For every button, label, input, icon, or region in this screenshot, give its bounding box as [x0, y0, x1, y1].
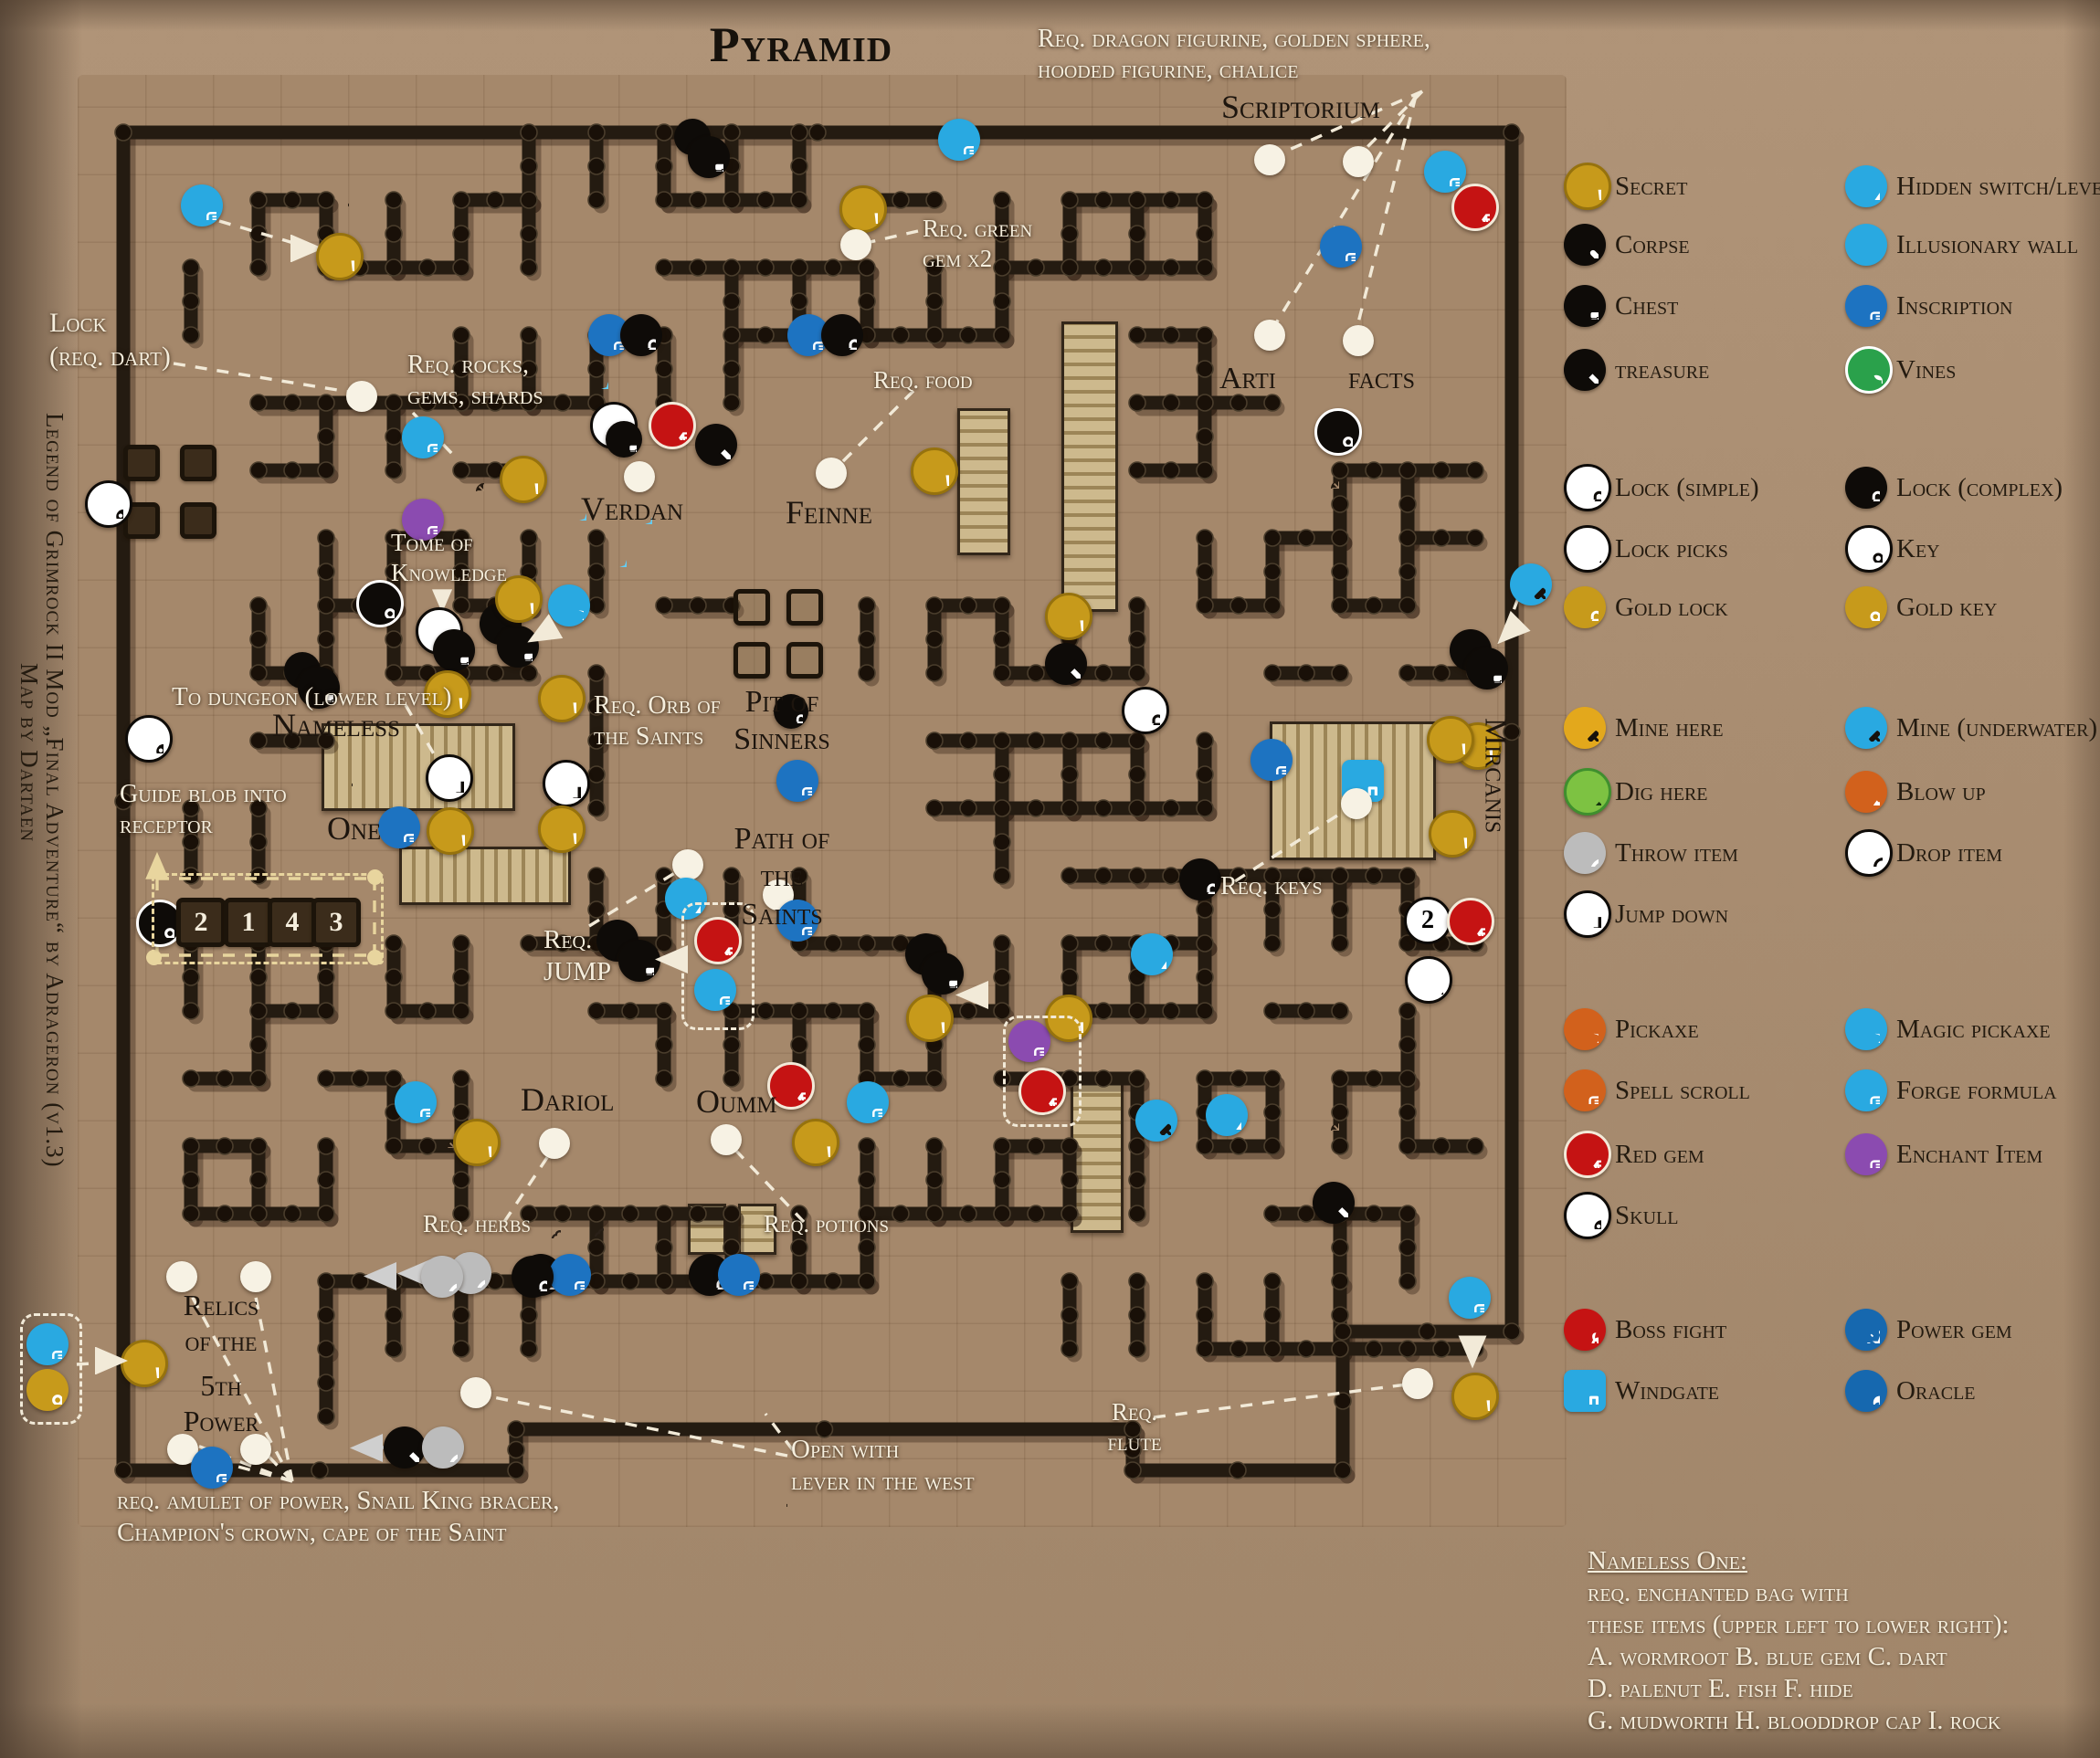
- lock-c-icon: [1845, 467, 1887, 509]
- legend-row: WindgateOracle: [1564, 1370, 2100, 1412]
- legend-row: Throw itemDrop item: [1564, 829, 2100, 871]
- scroll-icon: [803, 928, 812, 935]
- legend-row: Dig hereBlow up: [1564, 768, 2100, 810]
- legend-label: Skull: [1615, 1203, 1836, 1229]
- redgem-icon: [1564, 1131, 1611, 1178]
- gem-icon: [1483, 215, 1489, 221]
- legend-label: Mine here: [1615, 715, 1836, 742]
- boss-icon: [1564, 1309, 1606, 1351]
- credits-mod-line: Legend of Grimrock II Mod „Final Adventu…: [40, 413, 69, 1168]
- lock-c-marker: [512, 1256, 554, 1298]
- legend-label: Inscription: [1896, 293, 2100, 320]
- dot-marker: [1343, 325, 1374, 356]
- key-inv-marker: [1314, 408, 1362, 456]
- wooden-bridge: [1061, 321, 1118, 612]
- legend-group: Boss fightPower gemWindgateOracle: [1564, 1309, 2100, 1431]
- pick-icon: [1585, 1031, 1599, 1043]
- inscription-marker: [776, 900, 818, 942]
- redgem-marker: [1451, 184, 1499, 231]
- scroll-icon: [1872, 1098, 1880, 1105]
- lock-icon: [1592, 612, 1599, 621]
- chest-marker: [618, 940, 660, 982]
- illusion-icon: [1845, 224, 1887, 266]
- map-pillar: [733, 589, 770, 626]
- inscription-marker: [378, 806, 420, 848]
- legend-label: Boss fight: [1615, 1317, 1836, 1343]
- key-icon: [1845, 525, 1893, 573]
- legend-label: Gold key: [1896, 595, 2100, 621]
- mine-uw-marker: [1135, 1100, 1177, 1142]
- exclaim-icon: [573, 702, 575, 713]
- dot-marker: [624, 461, 655, 492]
- magicpick-icon: [1845, 1008, 1887, 1050]
- gem-icon: [680, 433, 686, 439]
- treasure-marker: [384, 1426, 426, 1469]
- legend-row: treasureVines: [1564, 346, 2100, 388]
- jump-marker: [426, 754, 473, 802]
- pickaxe-icon: [1564, 1008, 1606, 1050]
- dot-marker: [166, 1261, 197, 1292]
- secret-marker: [495, 575, 543, 623]
- map-pillar: [123, 445, 160, 481]
- dot-marker: [346, 381, 377, 412]
- sparkle-icon: [619, 560, 627, 567]
- chest-icon: [949, 980, 957, 987]
- scroll-icon: [1872, 1162, 1880, 1169]
- legend-row: Mine hereMine (underwater): [1564, 707, 2100, 749]
- spell-icon: [1564, 1069, 1606, 1111]
- map-pillar: [180, 502, 216, 539]
- note-line: A. wormroot B. blue gem C. dart: [1588, 1641, 2081, 1673]
- secret-marker: [792, 1119, 839, 1166]
- xr-icon: [1593, 253, 1599, 258]
- chest-marker: [433, 629, 475, 671]
- forge-marker: [1424, 151, 1466, 193]
- lock-icon: [1595, 492, 1601, 501]
- chest-marker: [606, 421, 642, 458]
- lock-icon: [849, 340, 856, 349]
- treasure-icon: [1564, 349, 1606, 391]
- throw-marker: [421, 1256, 463, 1298]
- enchant-icon: [1845, 1133, 1887, 1175]
- sparkle-marker: [621, 493, 658, 530]
- dot-marker: [1343, 146, 1374, 177]
- map-pillar: [786, 642, 823, 679]
- forge-marker: [847, 1081, 889, 1123]
- exclaim-icon: [155, 1367, 158, 1378]
- scroll-icon: [428, 527, 438, 534]
- scroll-icon: [207, 213, 216, 220]
- stairs-marker: [756, 1476, 793, 1512]
- scroll-icon: [1590, 1098, 1599, 1105]
- picks-icon: [1433, 985, 1442, 995]
- key-inv-marker: [356, 580, 404, 627]
- stairs-icon: [340, 199, 349, 205]
- chest-icon: [460, 657, 469, 664]
- switch-marker: [1206, 1094, 1248, 1136]
- dot-marker: [816, 458, 847, 489]
- legend-label: Power gem: [1896, 1317, 2100, 1343]
- exclaim-icon: [573, 833, 575, 844]
- redgem-marker: [1447, 898, 1494, 945]
- treasure-marker: [1045, 643, 1087, 685]
- lock-icon: [1873, 492, 1880, 501]
- throw-marker: [422, 1426, 464, 1469]
- legend-label: Dig here: [1615, 779, 1836, 805]
- rosette-marker: [1308, 1100, 1345, 1136]
- inscription-marker: [191, 1447, 233, 1489]
- shovel-icon: [1592, 793, 1601, 805]
- key-icon: [385, 609, 394, 617]
- exclaim-icon: [1489, 750, 1492, 761]
- skull-marker: [85, 480, 132, 528]
- chest-icon: [646, 967, 654, 974]
- chest-icon: [1564, 285, 1606, 327]
- throw-icon: [1591, 856, 1599, 867]
- gate-icon: [1589, 1396, 1599, 1405]
- skull-icon: [1564, 1192, 1611, 1239]
- dot-marker: [1402, 1368, 1433, 1399]
- sparkle-icon: [579, 513, 586, 521]
- hammers-icon: [1869, 731, 1880, 742]
- legend-row: Red gemEnchant Item: [1564, 1131, 2100, 1173]
- skull-icon: [156, 743, 164, 753]
- x-icon: [1593, 378, 1599, 384]
- jump-icon: [573, 786, 581, 797]
- grouping-dashed-box: [152, 873, 384, 964]
- secret-marker: [424, 670, 471, 718]
- secret-marker: [906, 995, 954, 1042]
- exclaim-icon: [1463, 837, 1466, 848]
- legend-row: Skull: [1564, 1192, 2100, 1234]
- forge-marker: [938, 119, 980, 161]
- legend-label: Throw item: [1615, 840, 1836, 867]
- lock-s-icon: [1564, 464, 1611, 511]
- legend-group: Mine hereMine (underwater)Dig hereBlow u…: [1564, 707, 2100, 952]
- legend-label: Forge formula: [1896, 1078, 2100, 1104]
- forge-icon: [1845, 1069, 1887, 1111]
- hammers-icon: [1588, 731, 1599, 742]
- page-edge-shadow-top: [0, 0, 2100, 31]
- bolt-icon: [1234, 1118, 1240, 1130]
- stairs-icon: [778, 1500, 787, 1506]
- bolt-icon: [1873, 189, 1880, 201]
- lock-c-marker: [774, 694, 808, 729]
- chest-marker: [688, 136, 730, 178]
- skull-icon: [1595, 1220, 1602, 1229]
- x-icon: [1074, 672, 1081, 679]
- lock-icon: [1208, 884, 1214, 893]
- inscription-marker: [1251, 739, 1293, 781]
- drop-icon: [1875, 856, 1883, 867]
- map-title: Pyramid: [678, 16, 924, 73]
- gem-icon: [1478, 929, 1484, 935]
- exclaim-icon: [1462, 743, 1464, 754]
- skull-icon: [116, 509, 123, 518]
- forge-marker: [395, 1081, 437, 1123]
- secret-marker: [1045, 593, 1092, 640]
- wooden-bridge: [688, 1204, 726, 1255]
- legend-group: Lock (simple)Lock (complex)Lock picksKey…: [1564, 464, 2100, 647]
- legend-group: SecretHidden switch/leverCorpseIllusiona…: [1564, 163, 2100, 407]
- mine-uw-icon: [1845, 707, 1887, 749]
- bush-marker: [573, 1205, 609, 1242]
- legend-row: SecretHidden switch/lever: [1564, 163, 2100, 205]
- legend-row: ChestInscription: [1564, 285, 2100, 327]
- dot-marker: [672, 849, 703, 880]
- secret-marker: [500, 456, 547, 503]
- legend-label: Magic pickaxe: [1896, 1016, 2100, 1043]
- wooden-bridge: [399, 847, 571, 905]
- lockpicks-icon: [1564, 525, 1611, 573]
- secret-marker: [911, 447, 958, 495]
- flame-icon: [1873, 795, 1880, 805]
- lock-s-marker: [1122, 687, 1169, 734]
- note-line: req. enchanted bag with: [1588, 1577, 2081, 1609]
- jump-icon: [456, 781, 464, 792]
- exclaim-icon: [1080, 620, 1082, 631]
- scroll-icon: [1346, 254, 1356, 261]
- inscription-marker: [1320, 226, 1362, 268]
- legend-label: Gold lock: [1615, 595, 1836, 621]
- plant-icon: [1874, 375, 1883, 384]
- moon-icon: [1873, 248, 1881, 258]
- exclaim-icon: [941, 1022, 944, 1033]
- lock-c-marker: [1179, 858, 1221, 900]
- grouping-dashed-box: [20, 1313, 82, 1425]
- lock-icon: [1153, 715, 1159, 724]
- inscription-icon: [1845, 285, 1887, 327]
- num-marker: 2: [1404, 897, 1451, 944]
- lock-icon: [649, 340, 655, 349]
- lock-icon: [540, 1281, 546, 1290]
- redgem-marker: [649, 402, 696, 449]
- legend-label: Key: [1896, 536, 2100, 563]
- gold-key-icon: [1845, 586, 1887, 628]
- key-icon: [1872, 613, 1880, 621]
- sparkle-marker: [577, 358, 614, 395]
- powergem-icon: [1845, 1309, 1887, 1351]
- star-icon: [1867, 1331, 1880, 1343]
- wooden-bridge: [957, 408, 1010, 555]
- scroll-icon: [421, 1110, 430, 1117]
- legend-label: Secret: [1615, 174, 1836, 200]
- lockpicks-marker: [1405, 956, 1452, 1004]
- legend-label: Drop item: [1896, 840, 2100, 867]
- blowup-icon: [1845, 771, 1887, 813]
- secret-icon: [1564, 163, 1611, 210]
- scroll-icon: [873, 1110, 882, 1117]
- key-icon: [1874, 554, 1883, 563]
- throw-icon: [448, 1279, 456, 1290]
- bush-icon: [595, 1229, 603, 1237]
- rosette-marker: [1308, 458, 1345, 494]
- inscription-marker: [776, 760, 818, 802]
- note-line: these items (upper left to lower right):: [1588, 1609, 2081, 1641]
- chest-icon: [629, 445, 637, 451]
- hammers-icon: [1534, 587, 1546, 599]
- devil-icon: [1591, 1332, 1599, 1343]
- exclaim-icon: [1599, 190, 1601, 200]
- mine-uw-marker: [1510, 563, 1552, 605]
- legend-label: Windgate: [1615, 1378, 1836, 1405]
- dot-marker: [711, 1124, 742, 1155]
- stairs-icon: [343, 779, 353, 785]
- redgem-marker: [767, 1062, 815, 1110]
- chest-marker: [298, 667, 340, 709]
- gem-icon: [1595, 1162, 1601, 1168]
- enchant-marker: [402, 499, 444, 541]
- throw-icon: [449, 1450, 457, 1461]
- forge-marker: [402, 416, 444, 458]
- throw-icon: [1564, 832, 1606, 874]
- scroll-icon: [965, 147, 974, 154]
- secret-marker: [316, 233, 364, 280]
- rosette-icon: [476, 483, 483, 490]
- x-icon: [1342, 1211, 1348, 1217]
- drop-icon: [1845, 829, 1893, 877]
- dot-marker: [1341, 788, 1372, 819]
- scroll-icon: [1277, 767, 1286, 774]
- dot-marker: [460, 1377, 491, 1408]
- legend-label: Vines: [1896, 357, 2100, 384]
- secret-marker: [538, 805, 586, 853]
- chest-marker: [922, 953, 964, 995]
- dot-marker: [240, 1434, 271, 1465]
- chest-icon: [1591, 312, 1599, 320]
- rosette-icon: [1331, 1122, 1338, 1130]
- legend-label: Enchant Item: [1896, 1142, 2100, 1168]
- map-pillar: [786, 589, 823, 626]
- legend-label: Mine (underwater): [1896, 715, 2100, 742]
- stairs-marker: [322, 755, 358, 792]
- exclaim-icon: [874, 213, 877, 224]
- jump-marker: [543, 760, 590, 807]
- rosette-icon: [1331, 480, 1338, 488]
- legend-label: Corpse: [1615, 232, 1836, 258]
- secret-marker: [427, 807, 474, 855]
- sparkle-icon: [645, 517, 652, 524]
- grouping-dashed-box: [1003, 1016, 1082, 1127]
- gem-icon: [798, 1093, 805, 1100]
- dot-marker: [240, 1261, 271, 1292]
- note-title: Nameless One:: [1588, 1546, 1747, 1575]
- legend-row: Lock picksKey: [1564, 525, 2100, 567]
- legend-label: Illusionary wall: [1896, 232, 2100, 258]
- legend-row: Jump down: [1564, 890, 2100, 932]
- scroll-icon: [428, 445, 438, 452]
- legend-row: Boss fightPower gem: [1564, 1309, 2100, 1351]
- switch-marker: [1131, 933, 1173, 975]
- x-icon: [413, 1456, 419, 1462]
- legend-label: Jump down: [1615, 901, 1836, 928]
- scroll-icon: [1451, 179, 1460, 186]
- chest-icon: [524, 653, 533, 660]
- sparkle-marker: [555, 490, 592, 526]
- alien-icon: [1873, 1396, 1880, 1405]
- dot-marker: [840, 229, 871, 260]
- scroll-icon: [405, 835, 414, 842]
- exclaim-icon: [461, 835, 464, 846]
- stairs-marker: [318, 175, 354, 212]
- secret-marker: [453, 1119, 501, 1166]
- secret-marker: [1451, 1373, 1499, 1420]
- legend-row: Spell scrollForge formula: [1564, 1069, 2100, 1111]
- hammers-icon: [1159, 1123, 1171, 1135]
- oracle-icon: [1845, 1370, 1887, 1412]
- secret-marker: [839, 185, 887, 233]
- note-lines: req. enchanted bag withthese items (uppe…: [1588, 1577, 2081, 1737]
- windgate-icon: [1564, 1370, 1606, 1412]
- secret-marker: [121, 1340, 168, 1387]
- treasure-marker: [1313, 1182, 1355, 1224]
- scroll-icon: [1872, 313, 1880, 321]
- picks-icon: [1592, 554, 1601, 563]
- corpse-icon: [1564, 224, 1606, 266]
- sparkle-icon: [601, 382, 608, 389]
- page: { "title": "Pyramid", "colors": { "gold"…: [0, 0, 2100, 1758]
- dig-icon: [1564, 768, 1611, 816]
- exclaim-icon: [459, 698, 461, 709]
- chest-marker: [1466, 647, 1508, 690]
- scroll-icon: [814, 342, 823, 350]
- legend-label: Blow up: [1896, 779, 2100, 805]
- wooden-bridge: [738, 1204, 776, 1255]
- legend-row: PickaxeMagic pickaxe: [1564, 1008, 2100, 1050]
- legend-label: Spell scroll: [1615, 1078, 1836, 1104]
- exclaim-icon: [488, 1146, 491, 1157]
- mine-icon: [1564, 707, 1606, 749]
- scroll-icon: [803, 788, 812, 795]
- treasure-marker: [695, 424, 737, 466]
- chest-icon: [325, 694, 333, 701]
- lock-c-marker: [620, 314, 662, 356]
- scroll-icon: [217, 1475, 227, 1482]
- legend-label: treasure: [1615, 357, 1836, 384]
- scroll-icon: [575, 1282, 585, 1290]
- secret-marker: [1427, 716, 1474, 763]
- throw-icon: [477, 1276, 484, 1287]
- exclaim-icon: [1486, 1400, 1489, 1411]
- credits-author-line: Map by Dartaen: [15, 663, 43, 842]
- exclaim-icon: [530, 603, 533, 614]
- map-pillar: [733, 642, 770, 679]
- legend-label: Red gem: [1615, 1142, 1836, 1168]
- legend-label: Chest: [1615, 293, 1836, 320]
- forge-marker: [1449, 1277, 1491, 1319]
- lock-c-marker: [821, 314, 863, 356]
- chest-marker: [497, 626, 539, 668]
- rosette-marker: [453, 460, 490, 497]
- chest-icon: [715, 163, 723, 171]
- dot-marker: [539, 1128, 570, 1159]
- vines-icon: [1845, 346, 1893, 394]
- forge-marker: [181, 184, 223, 226]
- secret-marker: [538, 675, 586, 722]
- inscription-marker: [549, 1254, 591, 1296]
- exclaim-icon: [534, 483, 537, 494]
- legend-group: PickaxeMagic pickaxeSpell scrollForge fo…: [1564, 1008, 2100, 1253]
- note-line: D. palenut E. fish F. hide: [1588, 1673, 2081, 1705]
- key-icon: [1344, 437, 1352, 446]
- legend-row: Lock (simple)Lock (complex): [1564, 464, 2100, 506]
- bush-icon: [552, 1231, 560, 1238]
- exclaim-icon: [945, 475, 948, 486]
- dot-marker: [1254, 144, 1285, 175]
- bolt-icon: [1159, 957, 1166, 969]
- legend-label: Oracle: [1896, 1378, 2100, 1405]
- inscription-marker: [718, 1254, 760, 1296]
